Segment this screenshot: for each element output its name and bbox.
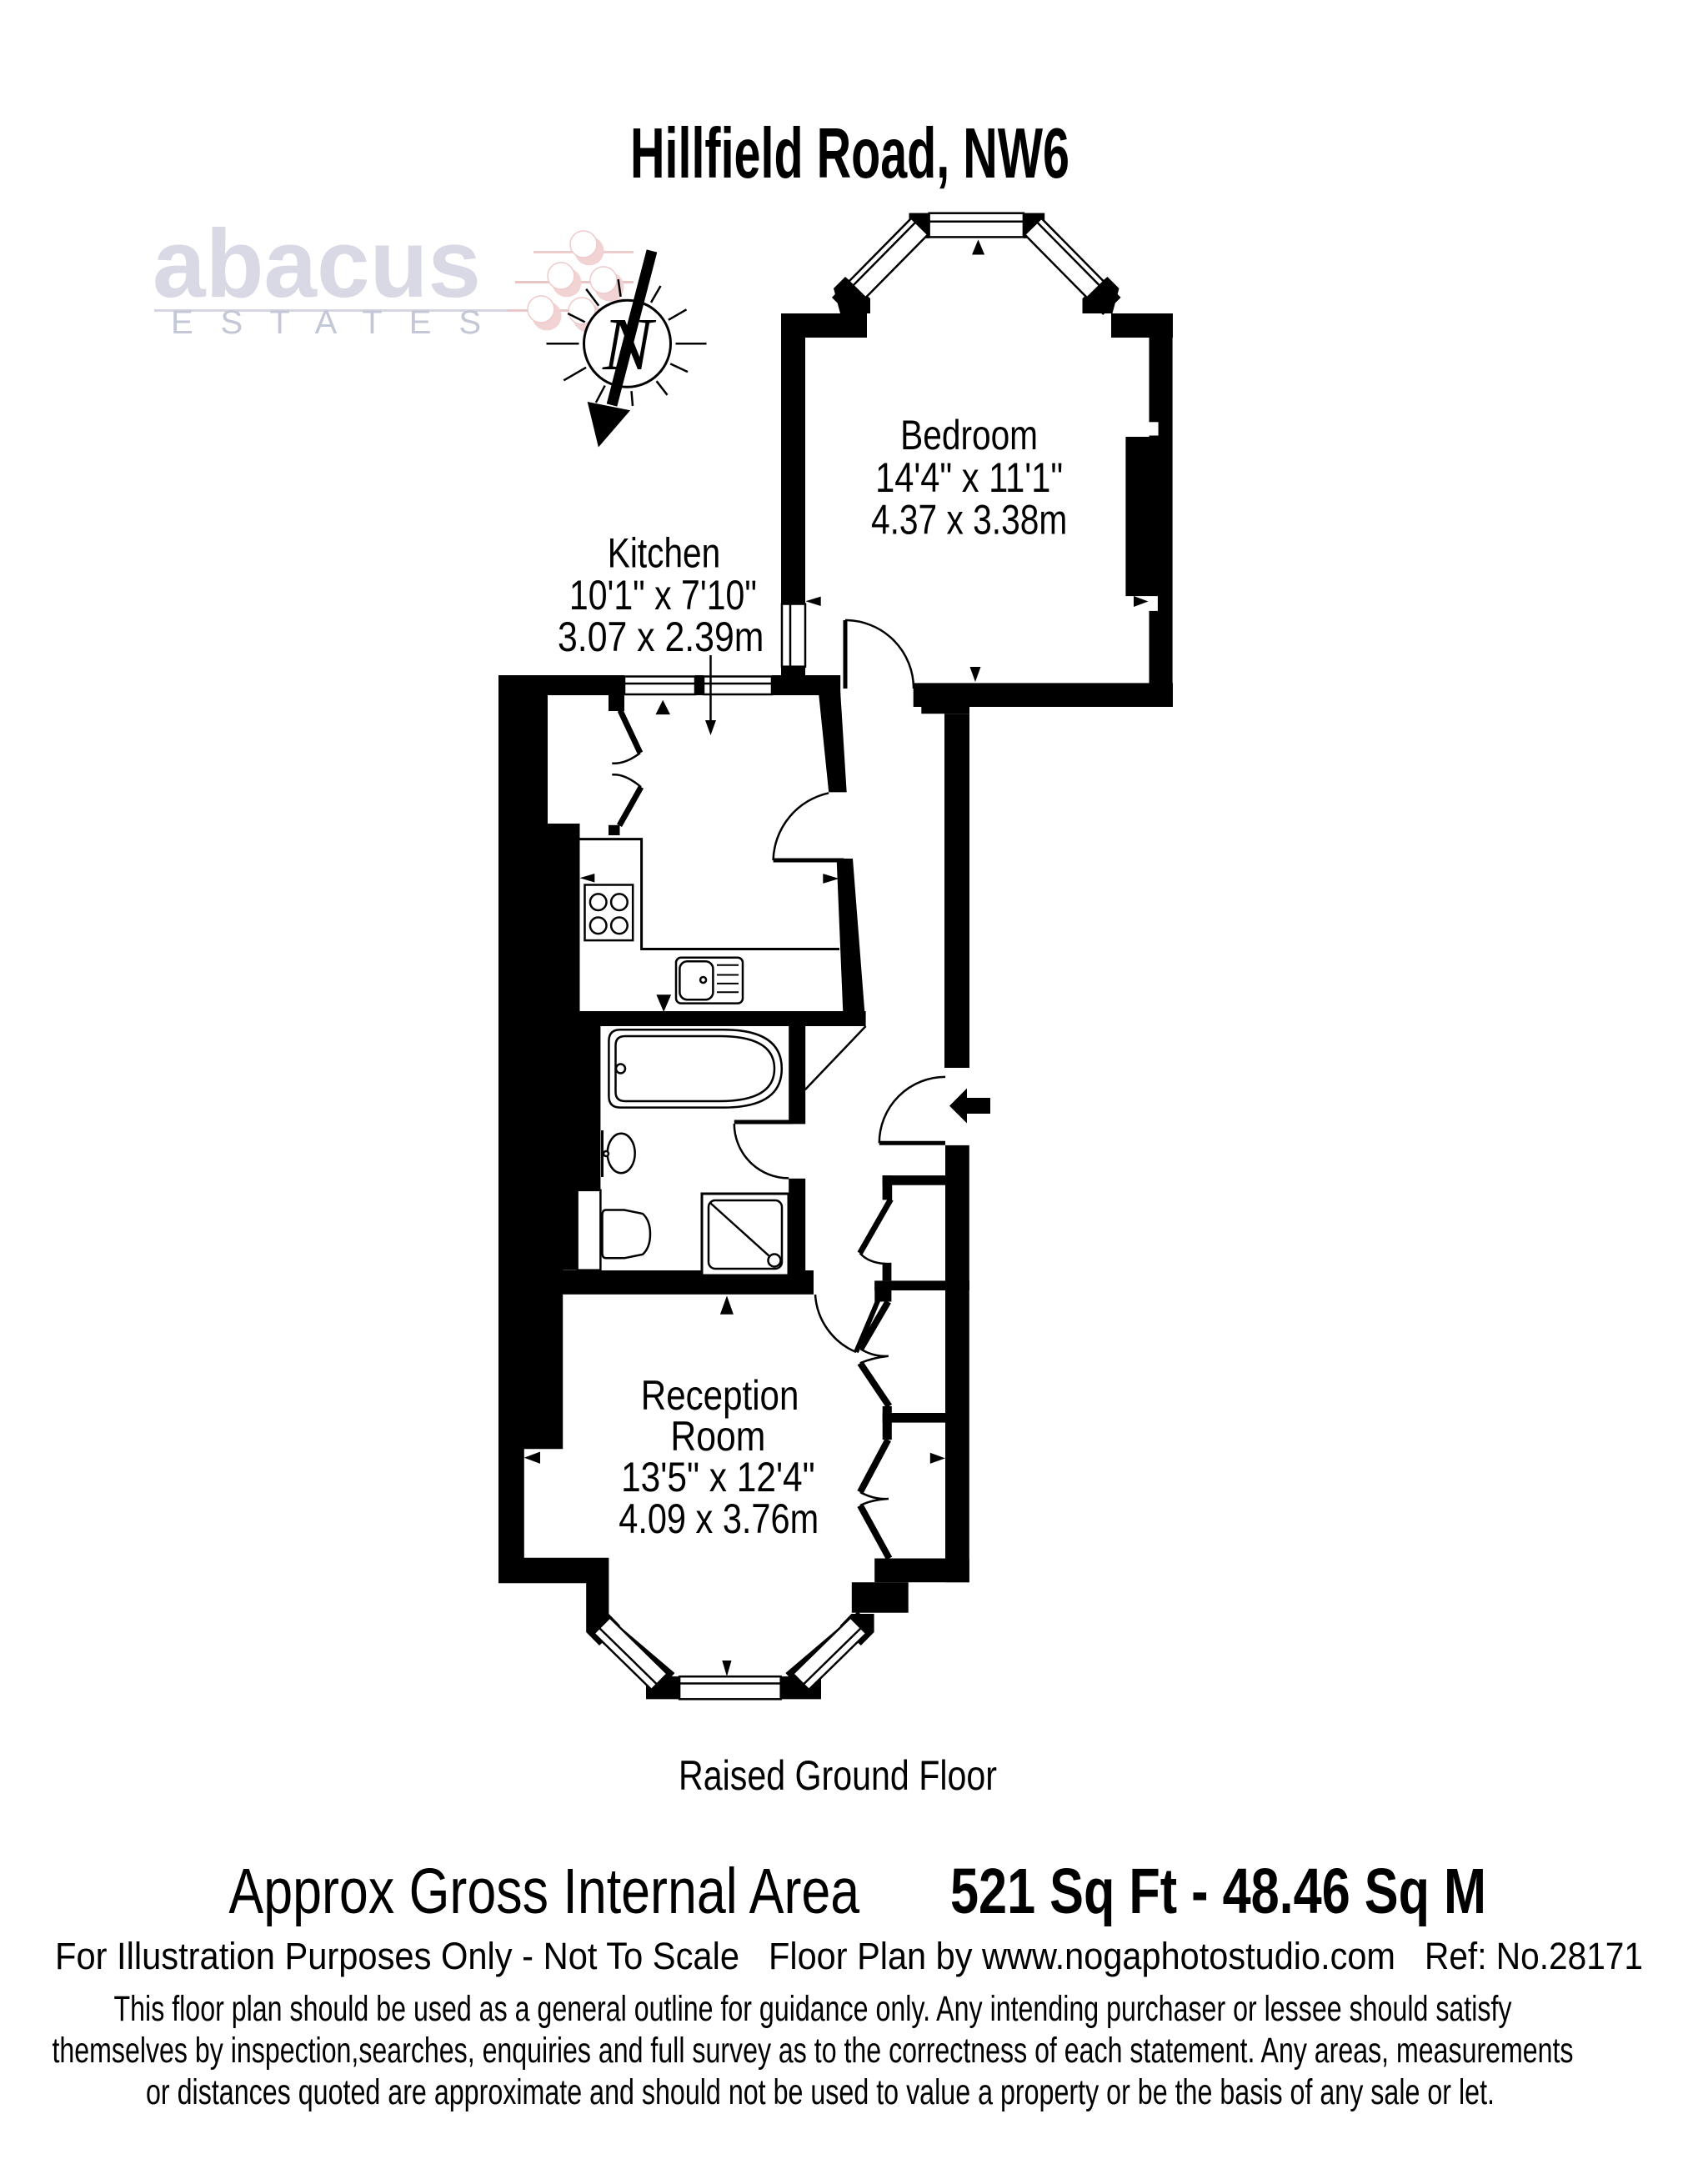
svg-text:This floor plan should be used: This floor plan should be used as a gene… xyxy=(114,1989,1512,2029)
svg-text:13'5" x 12'4": 13'5" x 12'4" xyxy=(621,1454,815,1500)
svg-text:Reception: Reception xyxy=(641,1372,799,1419)
svg-text:Hillfield Road, NW6: Hillfield Road, NW6 xyxy=(630,114,1069,193)
svg-text:4.37 x 3.38m: 4.37 x 3.38m xyxy=(871,497,1067,543)
svg-text:Bedroom: Bedroom xyxy=(900,412,1038,458)
svg-text:Raised Ground Floor: Raised Ground Floor xyxy=(679,1752,997,1799)
svg-text:10'1" x 7'10": 10'1" x 7'10" xyxy=(569,572,757,619)
svg-text:themselves by inspection,searc: themselves by inspection,searches, enqui… xyxy=(53,2031,1574,2071)
svg-text:Kitchen: Kitchen xyxy=(608,530,720,577)
svg-text:or distances quoted are approx: or distances quoted are approximate and … xyxy=(146,2072,1495,2112)
svg-text:abacus: abacus xyxy=(153,209,481,318)
svg-text:521 Sq Ft - 48.46 Sq M: 521 Sq Ft - 48.46 Sq M xyxy=(950,1856,1486,1927)
svg-text:For Illustration Purposes Only: For Illustration Purposes Only - Not To … xyxy=(55,1935,739,1977)
svg-text:3.07 x 2.39m: 3.07 x 2.39m xyxy=(558,614,764,660)
svg-text:Approx Gross Internal Area: Approx Gross Internal Area xyxy=(228,1856,859,1927)
svg-text:Ref: No.28171: Ref: No.28171 xyxy=(1425,1935,1643,1977)
svg-text:4.09 x 3.76m: 4.09 x 3.76m xyxy=(619,1495,819,1542)
svg-text:Room: Room xyxy=(670,1413,765,1460)
svg-text:Floor Plan by www.nogaphotostu: Floor Plan by www.nogaphotostudio.com xyxy=(769,1935,1395,1977)
svg-text:14'4" x 11'1": 14'4" x 11'1" xyxy=(875,454,1063,501)
svg-text:N: N xyxy=(602,303,657,386)
